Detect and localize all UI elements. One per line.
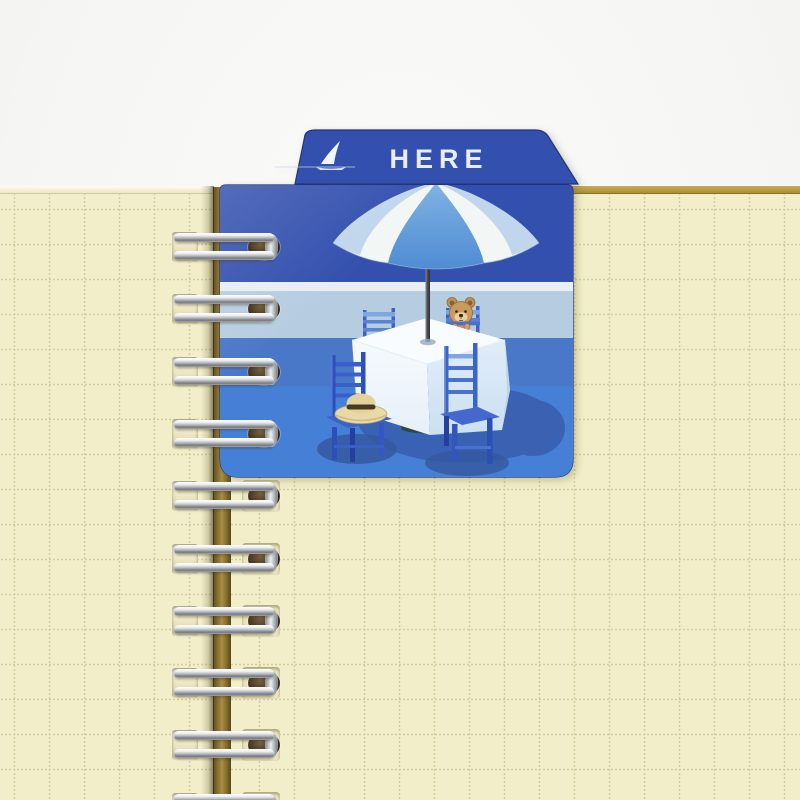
notebook-photo: HERE — [0, 0, 800, 800]
bookmark-tab: HERE — [275, 130, 578, 184]
bookmark-card: HERE — [215, 126, 595, 482]
page-gutter-shadow — [201, 186, 214, 800]
left-page — [0, 186, 213, 800]
left-page-top-edge — [0, 186, 213, 194]
tab-label: HERE — [389, 144, 488, 174]
